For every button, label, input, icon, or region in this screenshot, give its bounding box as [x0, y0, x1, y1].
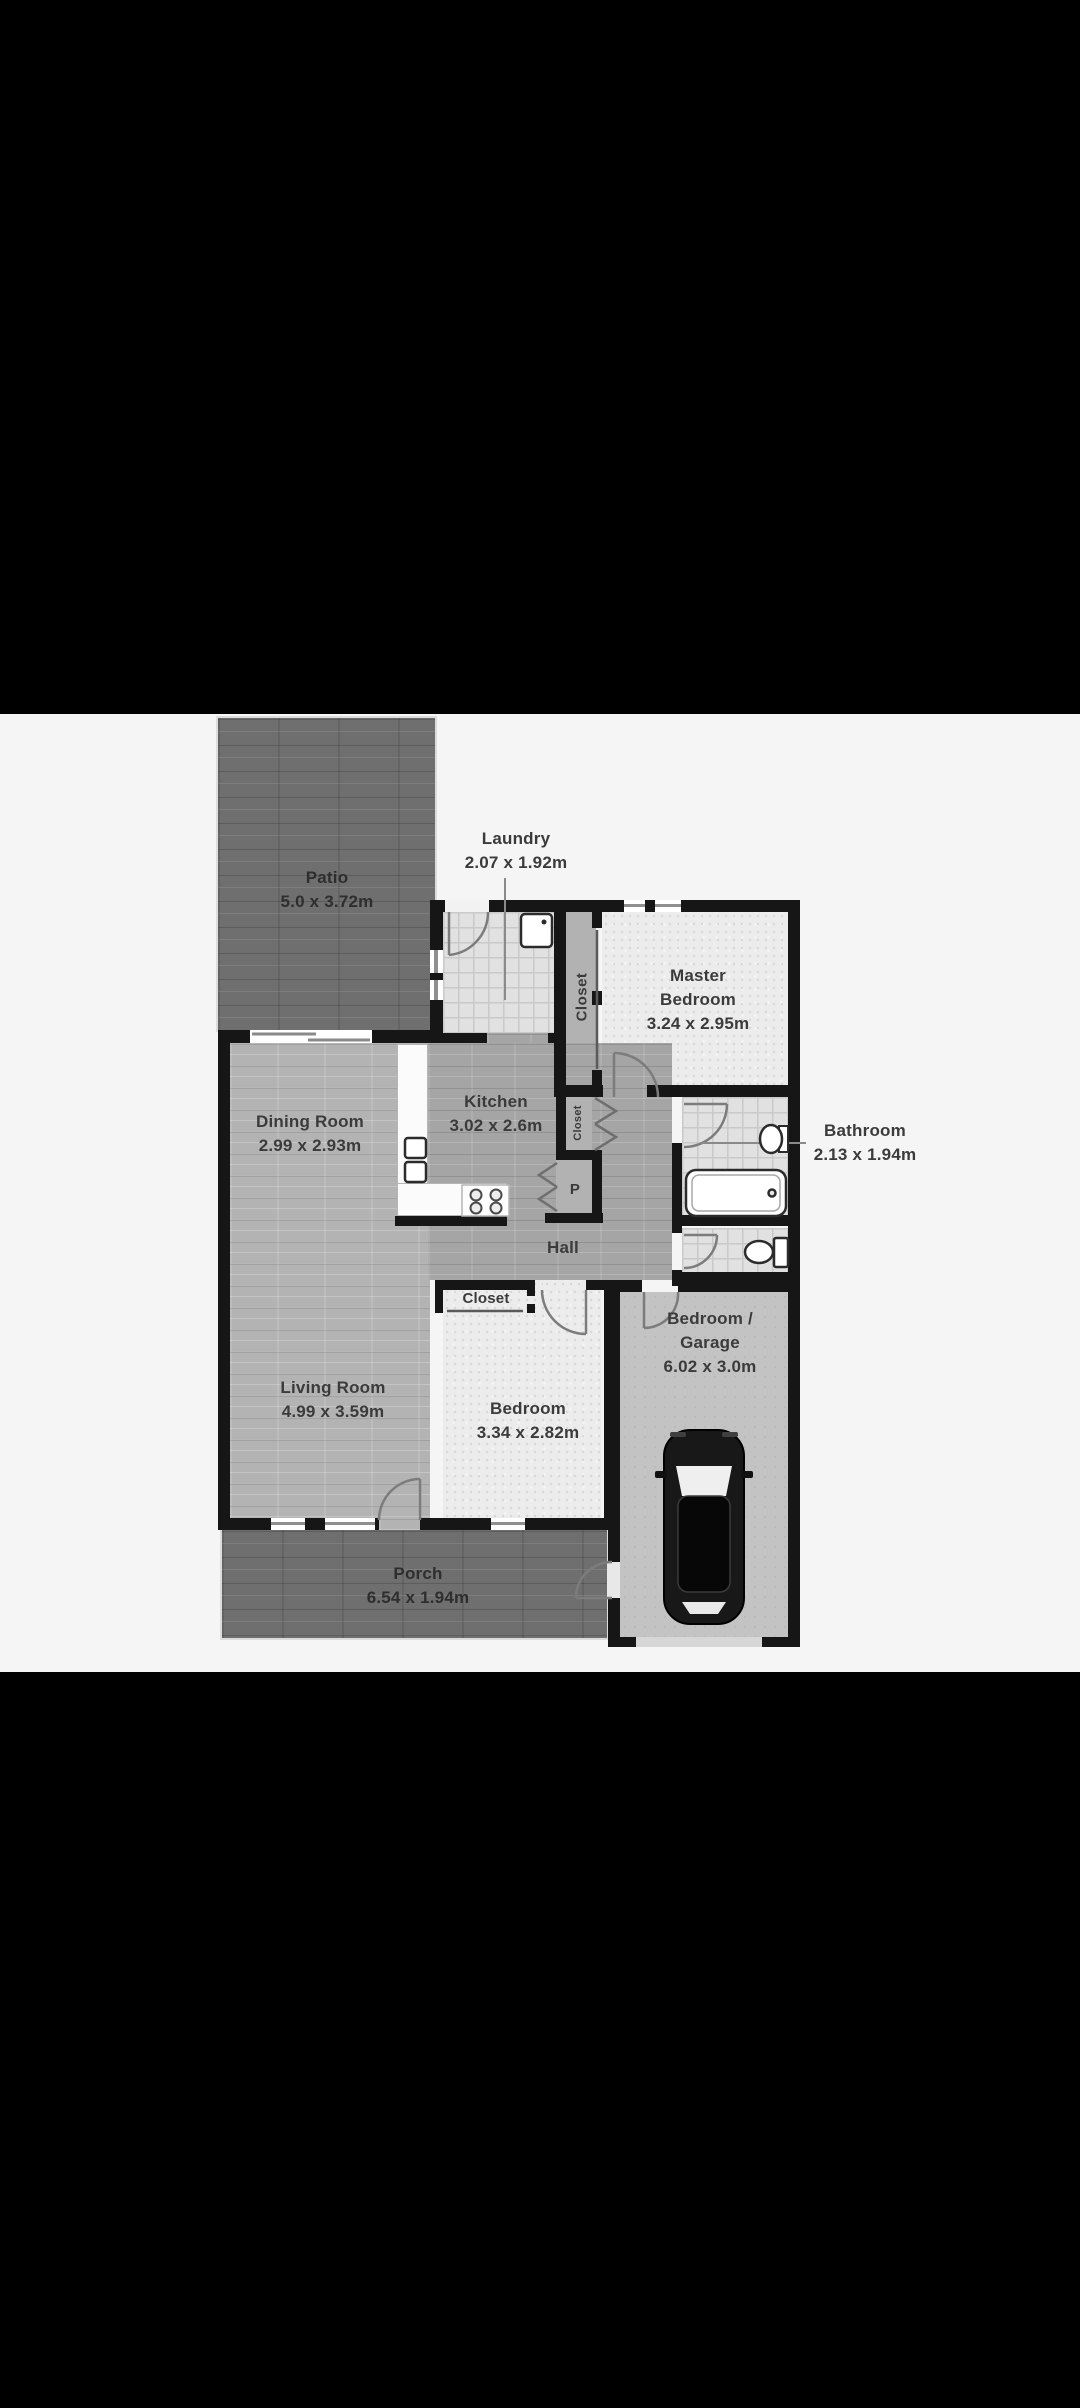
patio-label: Patio 5.0 x 3.72m — [281, 866, 374, 914]
laundry-door-arc — [449, 912, 488, 955]
room-dims: 6.02 x 3.0m — [664, 1355, 757, 1379]
master-bedroom-label: Master Bedroom 3.24 x 2.95m — [647, 964, 750, 1036]
room-dims: 2.13 x 1.94m — [814, 1143, 917, 1167]
room-name: Laundry — [465, 827, 568, 851]
porch-garage-door-arc — [576, 1562, 612, 1598]
bathroom-label: Bathroom 2.13 x 1.94m — [814, 1119, 917, 1167]
washing-machine-knob — [542, 920, 547, 925]
hall-label: Hall — [547, 1236, 579, 1260]
room-dims: 6.54 x 1.94m — [367, 1586, 470, 1610]
pantry-label: P — [570, 1178, 580, 1202]
room-dims: 2.99 x 2.93m — [256, 1134, 364, 1158]
car-icon — [655, 1430, 753, 1624]
room-name: Patio — [281, 866, 374, 890]
patio-slider-door — [252, 1034, 370, 1040]
letterbox-top — [0, 0, 1080, 714]
pantry-bifold-door — [539, 1163, 557, 1211]
hall-closet-label: Closet — [572, 1105, 584, 1140]
phone-screenshot: Patio 5.0 x 3.72m Laundry 2.07 x 1.92m M… — [0, 0, 1080, 2408]
room-name: Porch — [367, 1562, 470, 1586]
letterbox-bottom — [0, 1672, 1080, 2408]
garage-label: Bedroom / Garage 6.02 x 3.0m — [664, 1307, 757, 1379]
master-door-arc — [614, 1053, 658, 1097]
living-porch-door-arc — [379, 1479, 420, 1520]
bedroom-label: Bedroom 3.34 x 2.82m — [477, 1397, 580, 1445]
room-name: Garage — [664, 1331, 757, 1355]
living-room-label: Living Room 4.99 x 3.59m — [280, 1376, 385, 1424]
bedroom-door-arc — [542, 1290, 586, 1334]
room-name: Living Room — [280, 1376, 385, 1400]
toilet-bowl — [745, 1241, 773, 1263]
bathtub-drain — [769, 1190, 776, 1197]
kitchen-sink-basin — [405, 1162, 426, 1182]
closet-bifold-door — [595, 1098, 616, 1150]
toilet-tank — [774, 1238, 788, 1267]
master-closet-label: Closet — [574, 973, 591, 1022]
room-name: Kitchen — [450, 1090, 543, 1114]
room-name: Bedroom — [477, 1397, 580, 1421]
kitchen-sink-basin — [405, 1138, 426, 1158]
bathroom-door-arc — [684, 1104, 727, 1147]
room-dims: 2.07 x 1.92m — [465, 851, 568, 875]
porch-label: Porch 6.54 x 1.94m — [367, 1562, 470, 1610]
washing-machine — [521, 914, 552, 947]
room-dims: 3.24 x 2.95m — [647, 1012, 750, 1036]
stove — [462, 1185, 509, 1216]
room-name: Bathroom — [814, 1119, 917, 1143]
room-name: Dining Room — [256, 1110, 364, 1134]
room-name: Bedroom / — [664, 1307, 757, 1331]
room-dims: 3.02 x 2.6m — [450, 1114, 543, 1138]
dining-room-label: Dining Room 2.99 x 2.93m — [256, 1110, 364, 1158]
floorplan-image: Patio 5.0 x 3.72m Laundry 2.07 x 1.92m M… — [0, 714, 1080, 1672]
room-name: 4.99 x 3.59m — [280, 1400, 385, 1424]
bedroom-closet-label: Closet — [462, 1287, 509, 1311]
room-name: Master — [647, 964, 750, 988]
room-name: Bedroom — [647, 988, 750, 1012]
room-dims: 5.0 x 3.72m — [281, 890, 374, 914]
laundry-label: Laundry 2.07 x 1.92m — [465, 827, 568, 875]
room-dims: 3.34 x 2.82m — [477, 1421, 580, 1445]
kitchen-label: Kitchen 3.02 x 2.6m — [450, 1090, 543, 1138]
bathroom-sink — [760, 1125, 782, 1153]
wc-door-arc — [684, 1235, 717, 1268]
